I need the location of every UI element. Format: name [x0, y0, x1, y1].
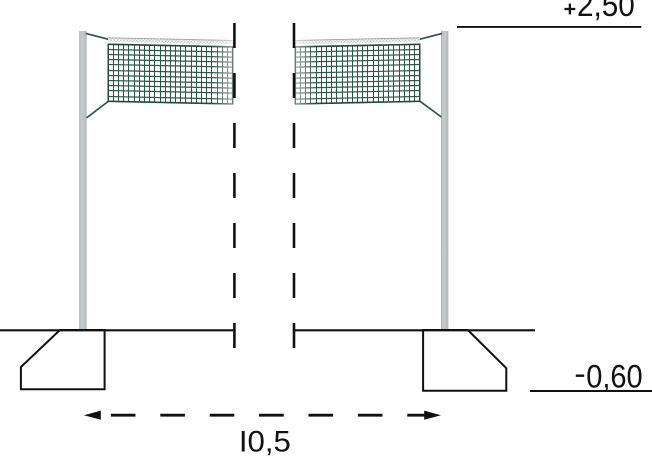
- svg-text:I0,5: I0,5: [239, 425, 291, 457]
- svg-text:2,50: 2,50: [577, 0, 635, 23]
- svg-text:0,60: 0,60: [586, 358, 643, 394]
